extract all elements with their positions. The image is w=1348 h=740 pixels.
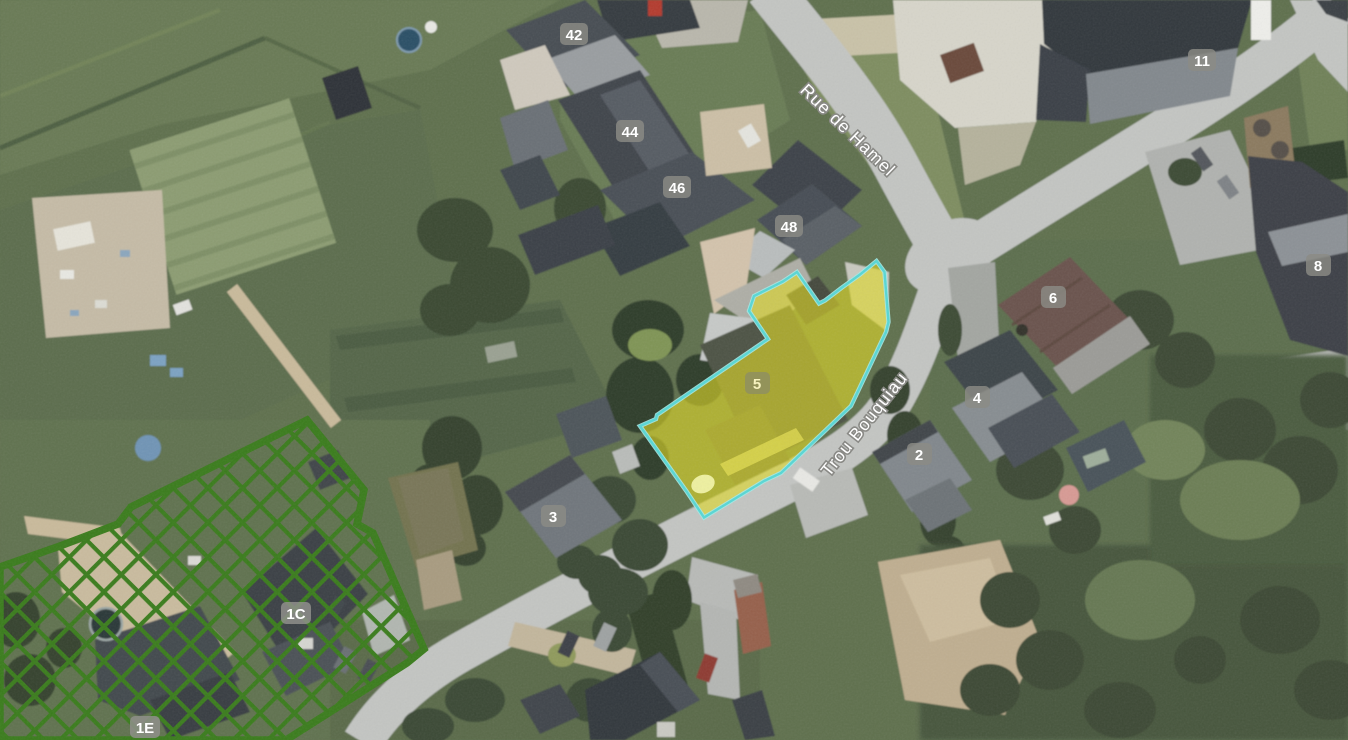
svg-text:4: 4 — [973, 390, 982, 407]
svg-text:46: 46 — [669, 180, 686, 197]
svg-text:11: 11 — [1194, 53, 1210, 70]
svg-text:5: 5 — [753, 376, 761, 393]
svg-text:42: 42 — [566, 27, 583, 44]
svg-text:6: 6 — [1049, 290, 1057, 307]
svg-text:1C: 1C — [286, 606, 305, 623]
svg-text:8: 8 — [1314, 258, 1322, 275]
svg-text:3: 3 — [549, 509, 557, 526]
svg-text:44: 44 — [622, 124, 639, 141]
svg-text:2: 2 — [915, 447, 923, 464]
svg-text:1E: 1E — [136, 720, 154, 737]
svg-text:48: 48 — [781, 219, 798, 236]
